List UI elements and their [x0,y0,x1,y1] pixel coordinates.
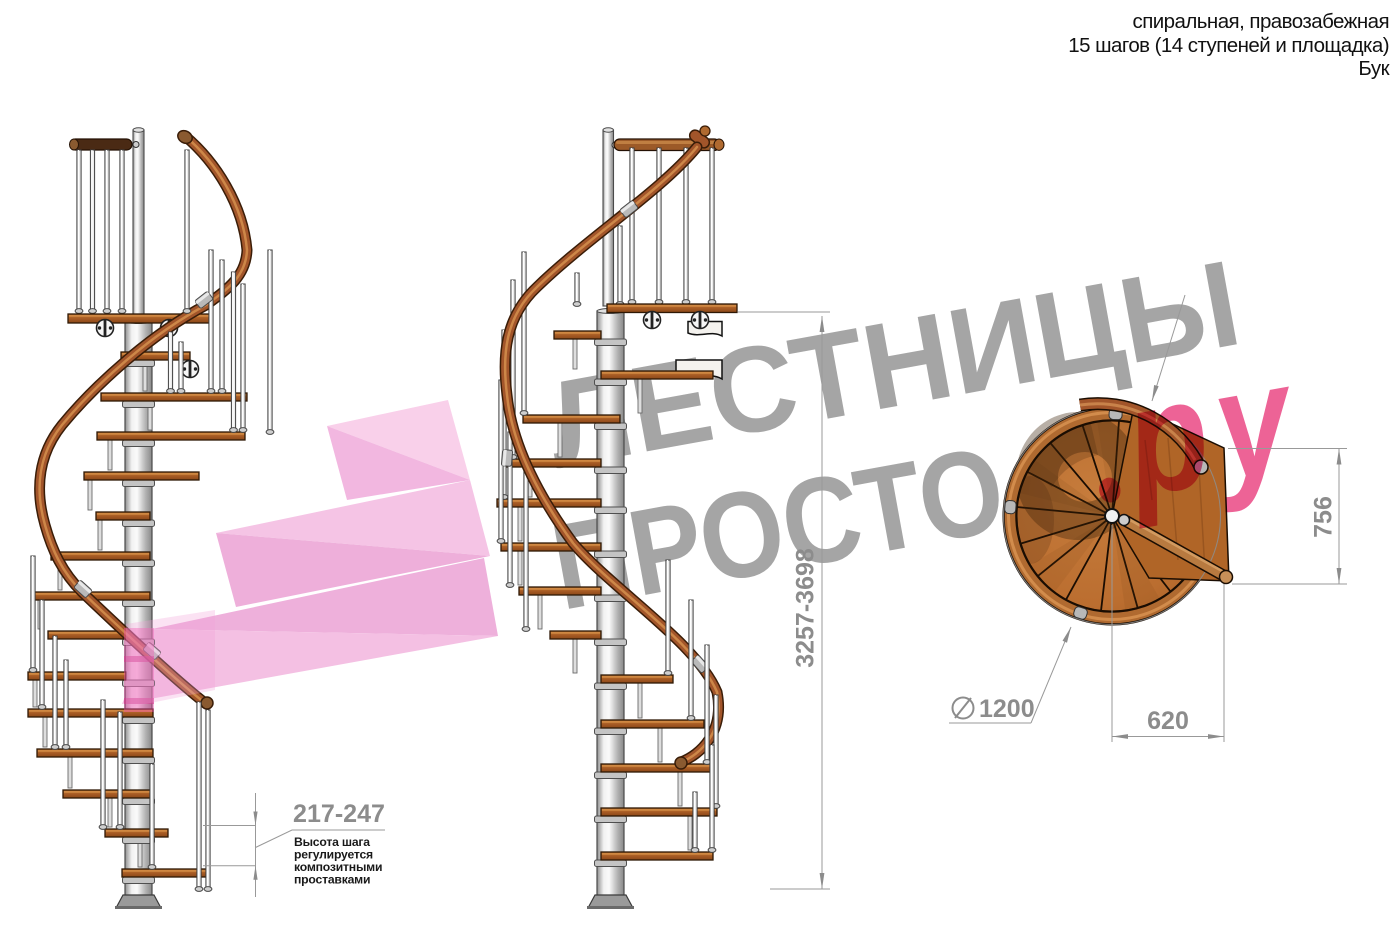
svg-text:спиральная, правозабежная: спиральная, правозабежная [1133,10,1389,33]
svg-text:15 шагов (14 ступеней и площад: 15 шагов (14 ступеней и площадка) [1068,34,1389,57]
svg-text:проставками: проставками [294,873,370,887]
svg-text:756: 756 [1310,496,1338,538]
svg-text:217-247: 217-247 [293,800,385,828]
svg-text:620: 620 [1147,707,1189,735]
svg-text:3257-3698: 3257-3698 [792,548,820,668]
svg-text:1200: 1200 [979,695,1035,723]
svg-text:Бук: Бук [1358,57,1390,80]
